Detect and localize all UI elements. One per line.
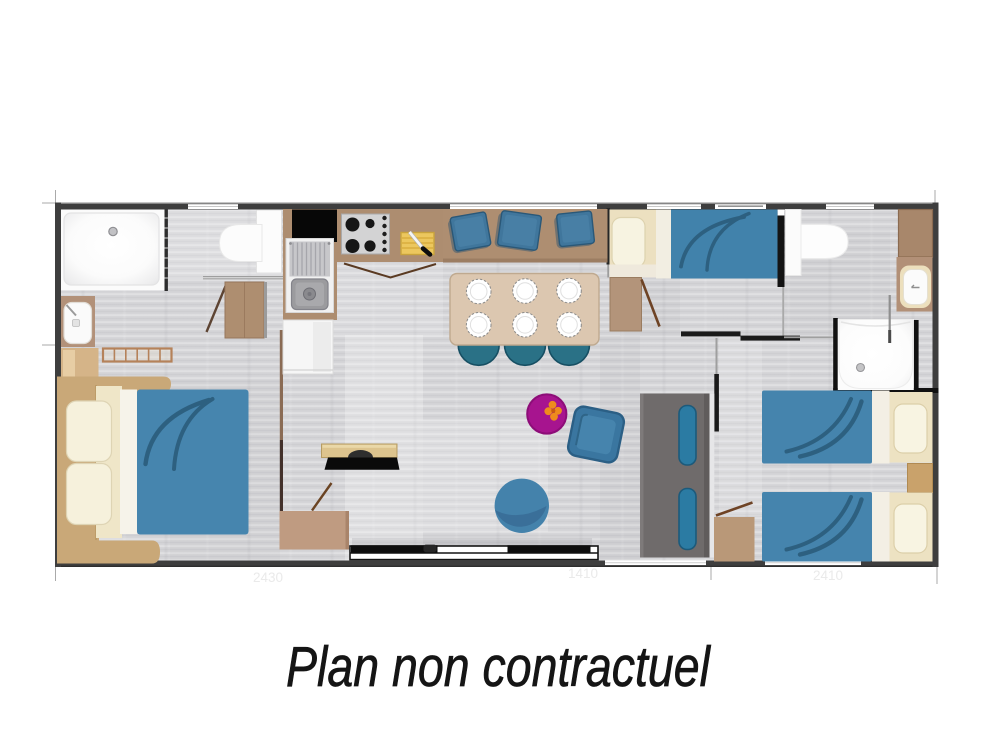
svg-text:Plan non contractuel: Plan non contractuel (286, 635, 711, 699)
svg-text:2430: 2430 (253, 570, 283, 585)
svg-text:1410: 1410 (568, 566, 598, 581)
svg-text:2410: 2410 (813, 568, 843, 583)
